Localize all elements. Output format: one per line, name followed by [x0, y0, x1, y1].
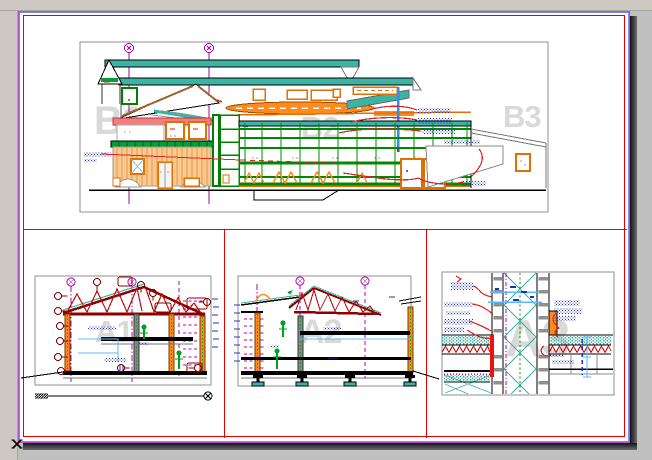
sheet-divider-vertical-1 [224, 229, 225, 438]
sheet-shadow-bottom [23, 443, 637, 450]
left-canopy [241, 290, 300, 312]
cad-viewport: { "window": { "background": "#c0c0c0", "… [0, 0, 652, 460]
section-drawing-a1 [20, 263, 224, 407]
floor-slabs [241, 331, 413, 378]
paper-sheet[interactable]: B1 B2 B3 A1 A2 A3 [19, 12, 629, 442]
detail-drawing-a3 [433, 259, 623, 399]
canvas-top-strip [0, 0, 652, 11]
left-blue-ticks [234, 305, 240, 361]
ground-line [89, 190, 546, 200]
plant-figures [140, 325, 183, 369]
ucs-cross-icon [10, 437, 24, 451]
left-building [111, 118, 213, 188]
annotation-notes [444, 282, 582, 364]
footings [252, 375, 416, 386]
columns [255, 307, 413, 373]
terrain-line [21, 372, 63, 378]
level-dashes [244, 319, 264, 368]
sheet-divider-vertical-2 [426, 229, 427, 438]
roof-bands [105, 60, 421, 90]
sheet-divider-horizontal [23, 229, 627, 230]
elevation-drawing [61, 31, 561, 221]
canvas-left-strip [0, 0, 18, 460]
wall-studs [492, 273, 549, 394]
ramp-wedge [426, 146, 503, 187]
section-scale-line [35, 392, 212, 400]
right-blue-marks [212, 299, 219, 347]
sheet-shadow-right [630, 16, 637, 449]
roof-truss [63, 284, 205, 315]
green-post-stack [213, 115, 239, 186]
section-drawing-a2 [229, 263, 425, 393]
left-slab [442, 335, 494, 382]
